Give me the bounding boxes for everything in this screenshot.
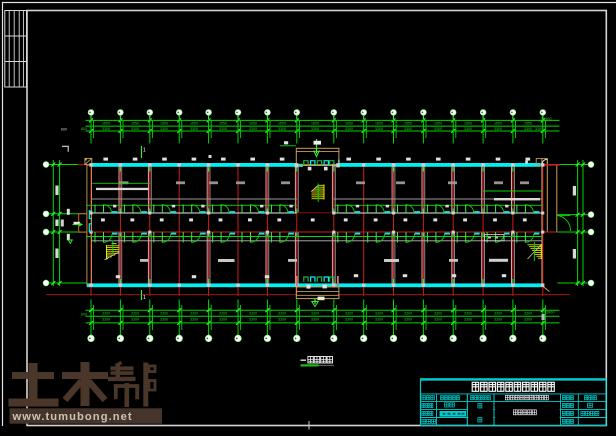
svg-text:3300: 3300: [404, 311, 412, 315]
svg-text:3300: 3300: [345, 127, 353, 131]
svg-text:1650: 1650: [219, 121, 227, 125]
svg-text:3300: 3300: [404, 318, 412, 322]
svg-text:1650: 1650: [249, 121, 257, 125]
svg-text:3300: 3300: [345, 318, 353, 322]
svg-text:3300: 3300: [190, 311, 198, 315]
svg-text:3300: 3300: [219, 318, 227, 322]
svg-text:3300: 3300: [249, 318, 257, 322]
svg-text:3300: 3300: [102, 127, 110, 131]
svg-text:3300: 3300: [249, 311, 257, 315]
svg-text:1: 1: [143, 295, 146, 301]
svg-text:www.tumubong.net: www.tumubong.net: [12, 411, 133, 423]
svg-text:1650: 1650: [190, 121, 198, 125]
svg-text:3300: 3300: [434, 318, 442, 322]
svg-text:3300: 3300: [160, 311, 168, 315]
svg-text:3300: 3300: [535, 127, 543, 131]
svg-text:3300: 3300: [375, 311, 383, 315]
svg-text:3300: 3300: [494, 127, 502, 131]
svg-text:1650: 1650: [375, 121, 383, 125]
svg-text:3300: 3300: [524, 127, 532, 131]
svg-text:1650: 1650: [311, 121, 319, 125]
svg-text:3300: 3300: [464, 318, 472, 322]
svg-text:3300: 3300: [375, 127, 383, 131]
svg-text:3300: 3300: [131, 311, 139, 315]
svg-text:3300: 3300: [249, 127, 257, 131]
svg-text:3300: 3300: [524, 311, 532, 315]
svg-text:3300: 3300: [311, 318, 319, 322]
svg-text:1650: 1650: [131, 121, 139, 125]
svg-text:600: 600: [81, 127, 87, 131]
svg-text:3300: 3300: [102, 318, 110, 322]
svg-text:3300: 3300: [190, 318, 198, 322]
svg-text:33900: 33900: [540, 116, 552, 121]
svg-text:3300: 3300: [464, 127, 472, 131]
svg-text:3300: 3300: [131, 127, 139, 131]
svg-text:1650: 1650: [160, 121, 168, 125]
svg-text:3300: 3300: [375, 318, 383, 322]
svg-text:1650: 1650: [524, 121, 532, 125]
svg-text:1650: 1650: [102, 121, 110, 125]
svg-text:1650: 1650: [464, 121, 472, 125]
svg-text:1: 1: [143, 148, 146, 154]
svg-text:3300: 3300: [311, 127, 319, 131]
svg-text:600: 600: [61, 127, 67, 131]
svg-text:3300: 3300: [160, 127, 168, 131]
svg-text:3300: 3300: [278, 318, 286, 322]
svg-text:3300: 3300: [311, 311, 319, 315]
svg-text:1650: 1650: [434, 121, 442, 125]
svg-text:3300: 3300: [434, 311, 442, 315]
svg-text:3300: 3300: [278, 127, 286, 131]
svg-text:3300: 3300: [102, 311, 110, 315]
svg-text:3300: 3300: [190, 127, 198, 131]
svg-text:3300: 3300: [494, 318, 502, 322]
svg-text:1650: 1650: [404, 121, 412, 125]
svg-text:3300: 3300: [219, 311, 227, 315]
svg-text:3300: 3300: [434, 127, 442, 131]
svg-text:3300: 3300: [524, 318, 532, 322]
svg-text:3300: 3300: [160, 318, 168, 322]
svg-text:33900: 33900: [543, 310, 555, 315]
svg-text:1650: 1650: [345, 121, 353, 125]
svg-text:3300: 3300: [278, 311, 286, 315]
svg-text:3300: 3300: [494, 311, 502, 315]
svg-text:3300: 3300: [219, 127, 227, 131]
svg-text:1650: 1650: [494, 121, 502, 125]
svg-text:1650: 1650: [278, 121, 286, 125]
svg-text:3300: 3300: [131, 318, 139, 322]
svg-text:600: 600: [81, 313, 87, 317]
svg-text:3300: 3300: [345, 311, 353, 315]
svg-text:3300: 3300: [464, 311, 472, 315]
svg-text:3300: 3300: [404, 127, 412, 131]
